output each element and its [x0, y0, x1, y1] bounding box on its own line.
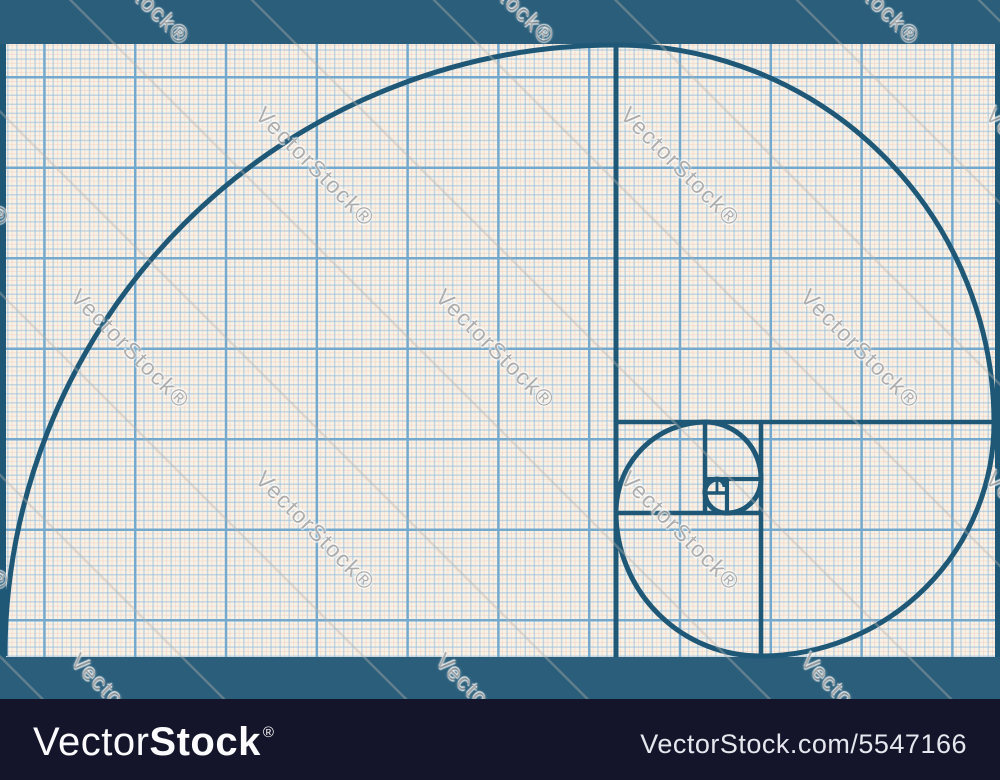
footer-bar: VectorStock® VectorStock.com/5547166: [0, 699, 1000, 780]
stock-image-preview: VectorStock®VectorStock®VectorStock®Vect…: [0, 0, 1000, 780]
footer-image-url: VectorStock.com/5547166: [640, 729, 967, 760]
golden-spiral-path: [5, 45, 994, 656]
logo-registered-mark: ®: [263, 724, 274, 741]
logo-stock-text: Stock: [149, 720, 260, 764]
logo-vector-text: Vector: [33, 720, 149, 764]
golden-spiral-svg: [0, 0, 1000, 780]
vectorstock-logo: VectorStock®: [33, 713, 274, 762]
